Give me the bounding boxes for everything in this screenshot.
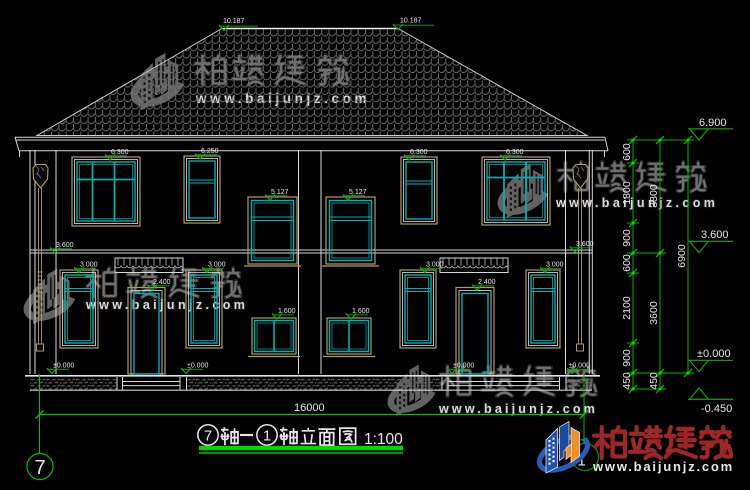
svg-text:±0.000: ±0.000 [569, 362, 590, 369]
svg-text:3.600: 3.600 [56, 242, 74, 249]
svg-text:6.300: 6.300 [111, 149, 129, 156]
svg-text:1800: 1800 [621, 181, 633, 205]
svg-text:3600: 3600 [648, 301, 660, 325]
svg-text:7: 7 [34, 457, 45, 479]
svg-text:www.baijunjz.com: www.baijunjz.com [85, 298, 248, 312]
svg-text:1: 1 [263, 428, 271, 445]
svg-text:±0.000: ±0.000 [187, 362, 208, 369]
svg-text:1.600: 1.600 [278, 308, 296, 315]
svg-text:2.400: 2.400 [153, 279, 171, 286]
svg-text:3300: 3300 [648, 184, 660, 208]
svg-text:6.900: 6.900 [699, 117, 727, 129]
svg-text:3.600: 3.600 [701, 229, 729, 241]
svg-text:6.300: 6.300 [410, 149, 428, 156]
svg-text:10.187: 10.187 [223, 18, 245, 25]
svg-text:3.000: 3.000 [80, 261, 98, 268]
svg-text:±0.000: ±0.000 [453, 362, 474, 369]
svg-text:±0.000: ±0.000 [697, 348, 731, 360]
svg-text:6900: 6900 [676, 244, 688, 268]
svg-text:450: 450 [621, 372, 633, 390]
svg-text:6.250: 6.250 [201, 148, 219, 155]
svg-text:600: 600 [621, 254, 633, 272]
svg-text:3.000: 3.000 [546, 261, 564, 268]
svg-text:10.187: 10.187 [400, 18, 422, 25]
svg-text:www.baijunjz.com: www.baijunjz.com [555, 196, 718, 210]
svg-text:-0.450: -0.450 [701, 403, 732, 415]
svg-text:3.000: 3.000 [208, 261, 226, 268]
svg-text:6.300: 6.300 [506, 149, 524, 156]
svg-text:1:100: 1:100 [364, 431, 403, 448]
svg-text:5.127: 5.127 [349, 189, 367, 196]
svg-text:600: 600 [621, 143, 633, 161]
svg-text:450: 450 [648, 372, 660, 390]
svg-text:www.baijunjz.com: www.baijunjz.com [592, 459, 734, 474]
svg-text:2.400: 2.400 [478, 279, 496, 286]
svg-text:5.127: 5.127 [271, 189, 289, 196]
svg-text:3.600: 3.600 [576, 241, 594, 248]
svg-text:±0.000: ±0.000 [53, 362, 74, 369]
svg-text:3.000: 3.000 [426, 261, 444, 268]
svg-text:2100: 2100 [621, 296, 633, 320]
svg-text:16000: 16000 [294, 402, 325, 414]
svg-text:1.600: 1.600 [352, 308, 370, 315]
svg-text:900: 900 [621, 229, 633, 247]
svg-text:900: 900 [621, 349, 633, 367]
svg-text:7: 7 [204, 428, 212, 445]
